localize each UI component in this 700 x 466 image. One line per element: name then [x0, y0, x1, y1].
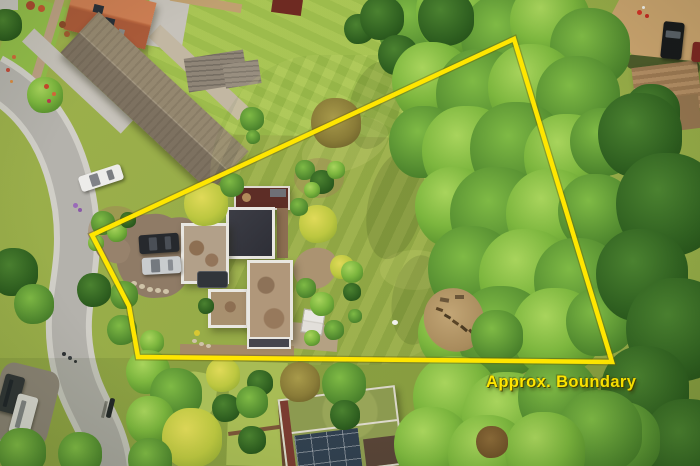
aerial-photo: Approx. Boundary	[0, 0, 700, 466]
boundary-overlay	[0, 0, 700, 466]
boundary-line	[92, 39, 612, 362]
boundary-label: Approx. Boundary	[486, 373, 636, 392]
